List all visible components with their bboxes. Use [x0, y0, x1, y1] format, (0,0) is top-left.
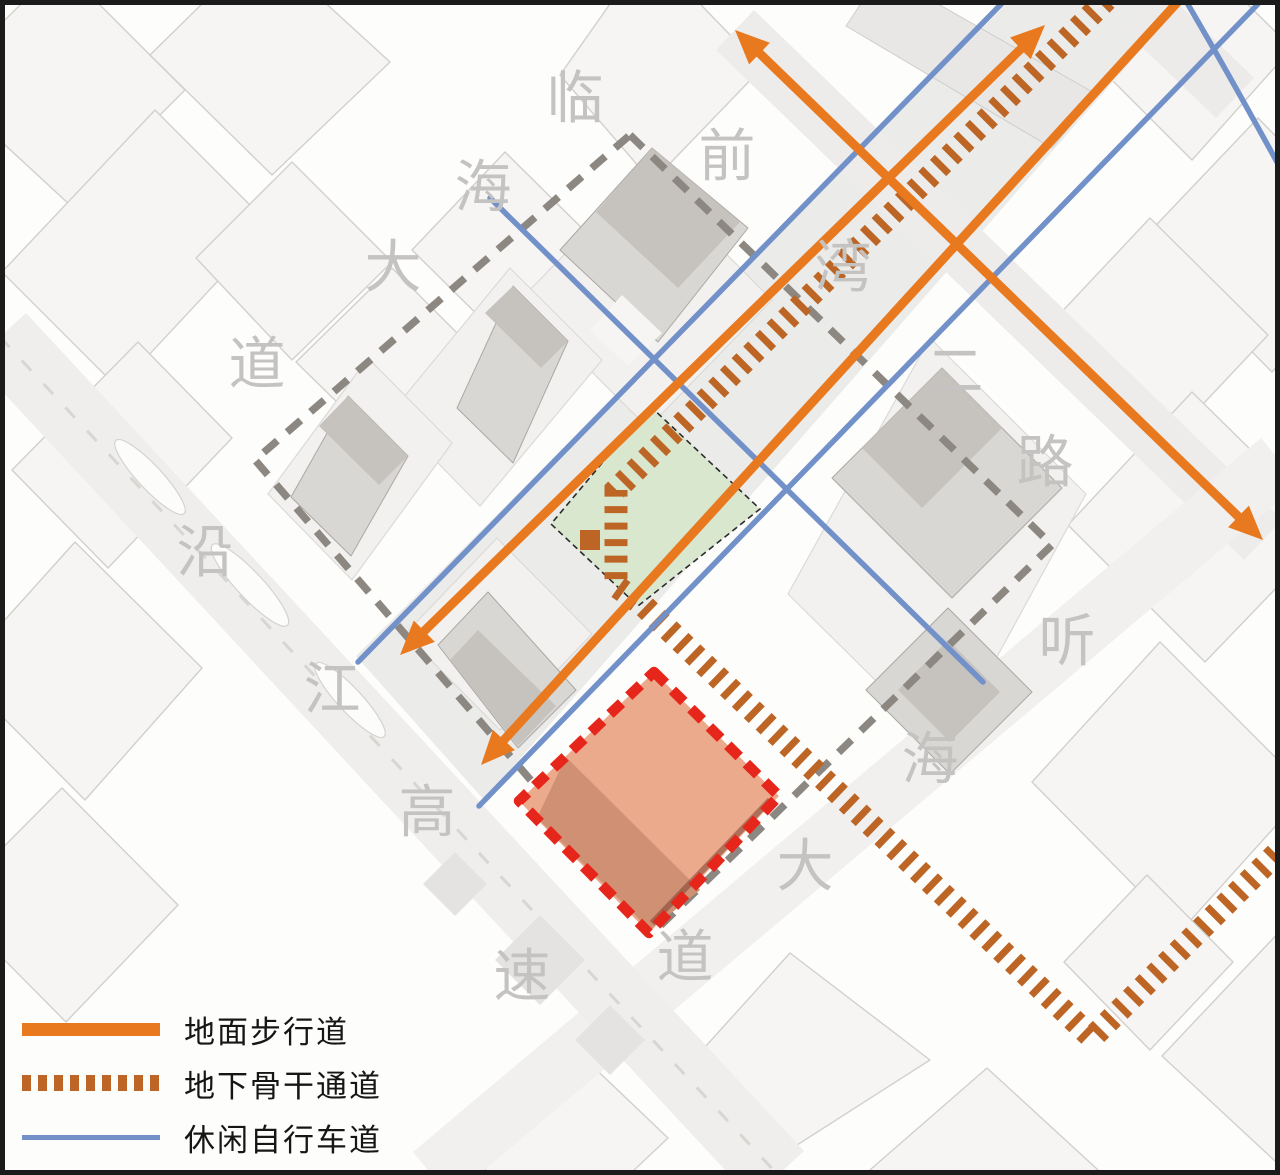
legend-key-dashed-bars — [22, 1075, 160, 1091]
planning-map: 临海大道前湾二路沿江高速听海大道 地面步行道 地下骨干通道 休闲自行车道 — [0, 0, 1280, 1175]
street-label-char: 大 — [777, 839, 834, 896]
street-label-char: 速 — [494, 949, 551, 1006]
legend-item-ground-walkway: 地面步行道 — [22, 1002, 492, 1056]
legend-label: 休闲自行车道 — [184, 1115, 382, 1160]
street-label-char: 临 — [547, 71, 604, 128]
legend-item-underground-corridor: 地下骨干通道 — [22, 1056, 492, 1110]
street-label-char: 湾 — [815, 240, 872, 297]
street-label-char: 道 — [657, 930, 714, 987]
street-label-char: 路 — [1017, 435, 1074, 492]
street-label-char: 听 — [1039, 614, 1096, 671]
corridor-node — [580, 530, 600, 550]
legend-key-solid-line — [22, 1023, 160, 1036]
street-label-char: 海 — [902, 732, 959, 789]
legend-label: 地面步行道 — [184, 1007, 349, 1052]
street-label-char: 前 — [699, 129, 756, 186]
legend-label: 地下骨干通道 — [184, 1061, 382, 1106]
street-label-char: 海 — [455, 160, 512, 217]
street-label-char: 江 — [304, 662, 361, 719]
legend: 地面步行道 地下骨干通道 休闲自行车道 — [22, 1002, 492, 1164]
street-label-char: 道 — [229, 337, 286, 394]
street-label-char: 沿 — [177, 525, 234, 582]
street-label-char: 高 — [399, 785, 456, 842]
street-label-char: 大 — [365, 240, 422, 297]
legend-key-thin-line — [22, 1135, 160, 1140]
street-label-char: 二 — [927, 344, 984, 401]
legend-item-bike-lane: 休闲自行车道 — [22, 1110, 492, 1164]
map-canvas — [0, 0, 1280, 1175]
